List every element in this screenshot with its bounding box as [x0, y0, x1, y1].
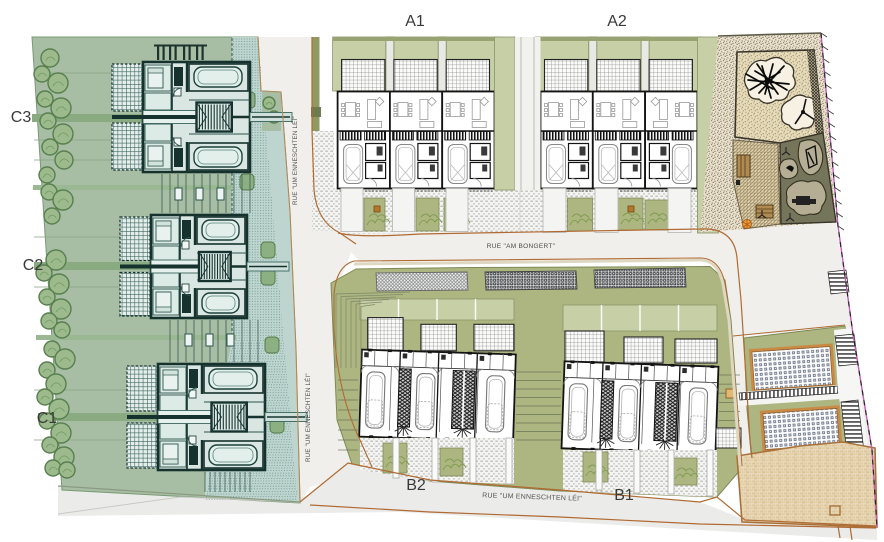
- svg-text:C3: C3: [11, 109, 32, 126]
- svg-text:A2: A2: [607, 13, 627, 30]
- svg-text:B2: B2: [406, 477, 426, 494]
- svg-text:B1: B1: [614, 487, 634, 504]
- svg-text:RUE "UM ENNESCHTEN LÉI": RUE "UM ENNESCHTEN LÉI": [305, 373, 312, 462]
- svg-text:RUE "UM ENNESCHTEN LÉI": RUE "UM ENNESCHTEN LÉI": [292, 116, 299, 205]
- svg-text:A1: A1: [405, 13, 425, 30]
- svg-text:C2: C2: [23, 257, 44, 274]
- svg-text:C1: C1: [37, 410, 58, 427]
- svg-text:RUE "AM BONGERT": RUE "AM BONGERT": [487, 243, 556, 250]
